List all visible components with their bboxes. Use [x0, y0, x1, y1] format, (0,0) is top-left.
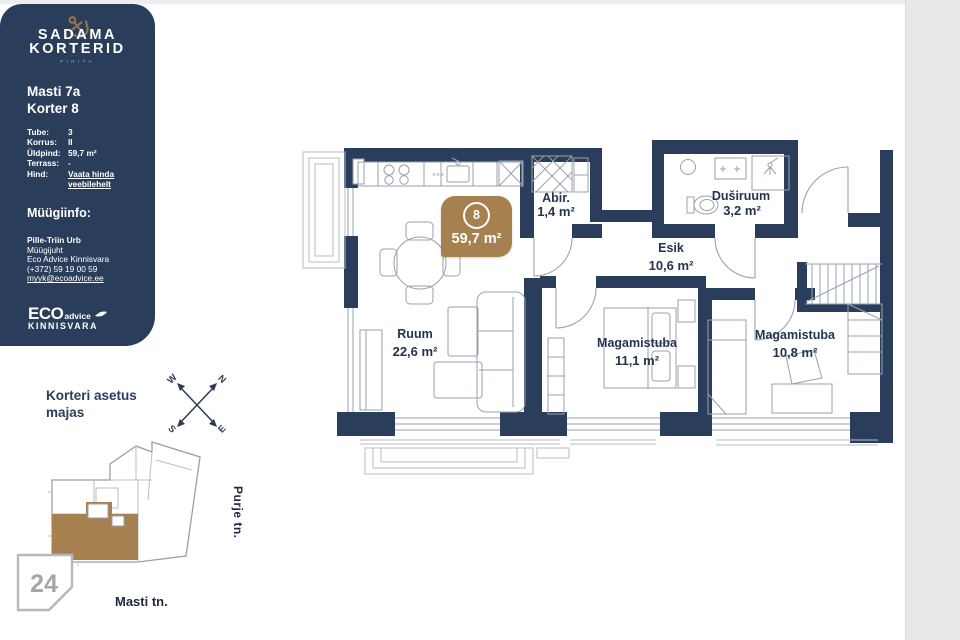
desk [772, 384, 832, 413]
apartment-area: 59,7 m² [441, 231, 512, 247]
room-label-dusiruum: Duširuum [712, 189, 770, 203]
detail-row-terrace: Terrass: - [27, 158, 114, 168]
compass-s: S [166, 423, 178, 435]
dining-table [394, 237, 446, 289]
sofa [477, 292, 525, 412]
svg-text:10,6 m²: 10,6 m² [649, 258, 694, 273]
detail-row-floor: Korrus: II [27, 137, 114, 147]
details-table: Tube: 3 Korrus: II Üldpind: 59,7 m² Terr… [27, 127, 114, 189]
room-label-magamistuba-1: Magamistuba [597, 336, 678, 350]
location-heading: Korteri asetus majas [46, 387, 137, 421]
svg-text:1,4 m²: 1,4 m² [537, 204, 575, 219]
room-label-esik: Esik [658, 241, 684, 255]
floor-plan: ××× [300, 133, 910, 535]
sales-heading: Müügiinfo: [27, 206, 91, 220]
compass-n: N [215, 373, 228, 386]
compass-e: E [216, 423, 228, 435]
street-address: Masti 7a [27, 83, 80, 100]
washing-machine [715, 158, 746, 179]
door-swings [534, 167, 848, 340]
svg-text:3,2 m²: 3,2 m² [723, 203, 761, 218]
listing-sheet: SADAMA KORTERID PIRITA Masti 7a Korter 8… [0, 0, 960, 640]
brand-line1: SADAMA [0, 28, 155, 42]
detail-row-price: Hind: Vaata hinda veebilehelt [27, 169, 114, 190]
brand-subtitle: PIRITA [0, 59, 155, 64]
brand-logo: SADAMA KORTERID PIRITA [0, 28, 155, 64]
price-link[interactable]: Vaata hinda veebilehelt [68, 169, 114, 190]
brand-line2: KORTERID [0, 42, 155, 56]
agent-email-link[interactable]: myyk@ecoadvice.ee [27, 273, 104, 283]
top-edge-strip [0, 0, 960, 4]
plot-number-marker: 24 [16, 553, 78, 615]
staircase [805, 264, 882, 304]
room-label-magamistuba-2: Magamistuba [755, 328, 836, 342]
plot-number: 24 [30, 570, 58, 598]
svg-text:11,1 m²: 11,1 m² [615, 353, 660, 368]
living-room-furniture [360, 292, 525, 412]
contact-block: Pille-Triin Urb Müügijuht Eco Advice Kin… [27, 236, 109, 284]
info-sidebar: SADAMA KORTERID PIRITA Masti 7a Korter 8… [0, 4, 155, 346]
room-label-abir: Abir. [542, 191, 570, 205]
toilet [687, 197, 694, 213]
street-label-purje: Purje tn. [231, 486, 245, 539]
walls [337, 140, 893, 443]
detail-row-rooms: Tube: 3 [27, 127, 114, 137]
address-block: Masti 7a Korter 8 [27, 83, 80, 117]
street-label-masti: Masti tn. [115, 594, 168, 609]
svg-text:10,8 m²: 10,8 m² [773, 345, 818, 360]
compass-w: W [166, 372, 179, 386]
apartment-number: 8 [463, 202, 490, 229]
svg-text:×××: ××× [432, 172, 444, 179]
detail-row-area: Üldpind: 59,7 m² [27, 148, 114, 158]
leaf-icon [95, 310, 107, 318]
apartment-number: Korter 8 [27, 100, 80, 117]
agency-logo: ECOadvice KINNISVARA [28, 309, 107, 331]
agency-logo-advice: advice [64, 311, 90, 321]
right-edge-strip [905, 0, 960, 640]
wardrobe [848, 304, 882, 374]
agency-logo-kinnisvara: KINNISVARA [28, 322, 107, 331]
compass-icon: W N S E [166, 372, 228, 436]
svg-text:22,6 m²: 22,6 m² [393, 344, 438, 359]
room-label-ruum: Ruum [397, 327, 432, 341]
apartment-badge: 8 59,7 m² [441, 196, 512, 257]
sink [681, 160, 696, 175]
